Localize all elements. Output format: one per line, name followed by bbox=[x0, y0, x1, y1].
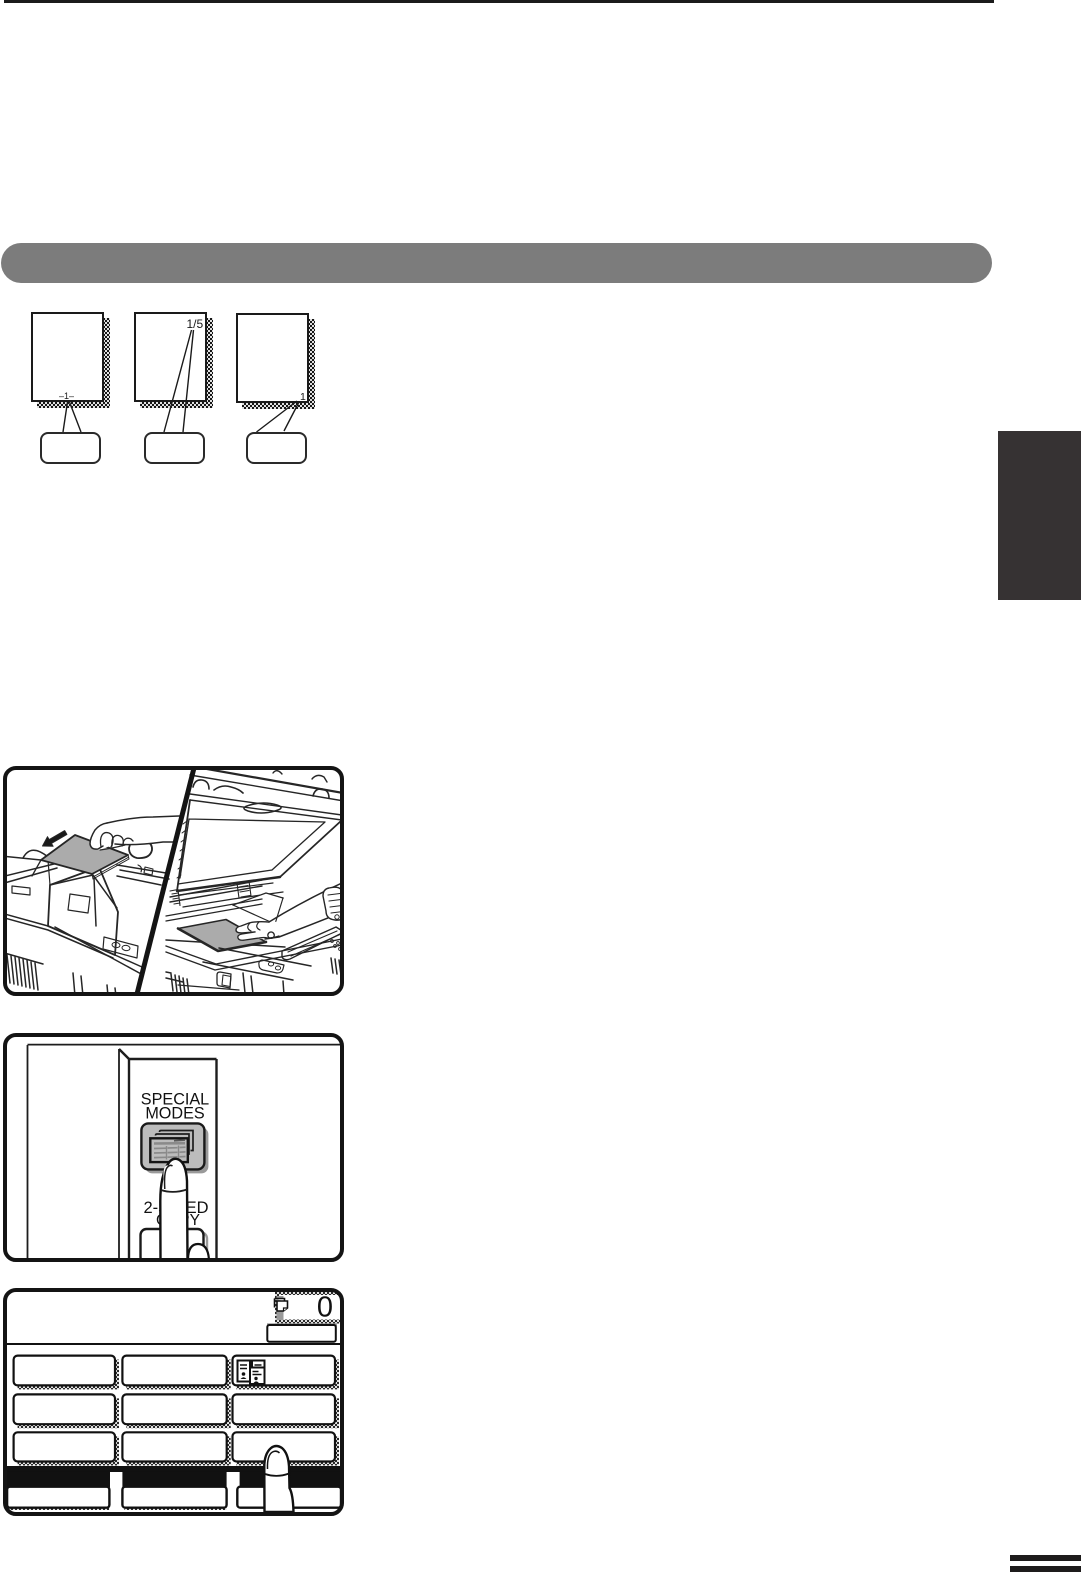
svg-text:MODES: MODES bbox=[145, 1105, 205, 1123]
svg-text:0: 0 bbox=[317, 1292, 333, 1324]
